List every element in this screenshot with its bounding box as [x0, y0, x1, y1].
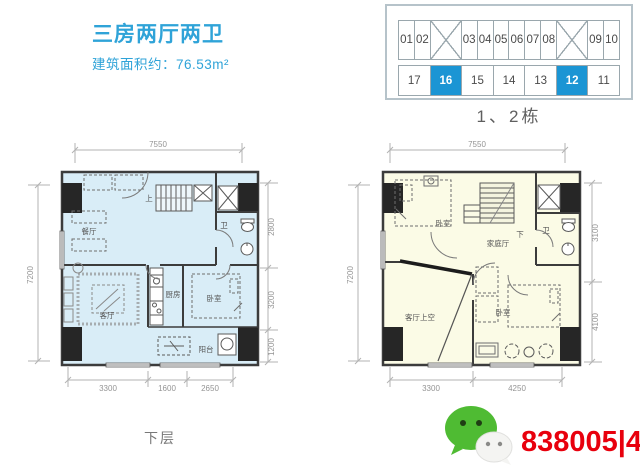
- unit-cell-05: 05: [493, 20, 510, 60]
- stair-direction-label: 上: [145, 194, 153, 203]
- wechat-icon: [441, 403, 519, 467]
- area-subtitle: 建筑面积约：76.53m²: [92, 53, 229, 73]
- unit-cell-03: 03: [461, 20, 478, 60]
- unit-cell-09: 09: [587, 20, 604, 60]
- building-caption: 1、2栋: [385, 102, 633, 127]
- unit-cell-14: 14: [493, 65, 526, 96]
- header: 三房两厅两卫 建筑面积约：76.53m²: [92, 18, 229, 73]
- unit-cell-08: 08: [540, 20, 557, 60]
- room-label-dining: 餐厅: [82, 227, 97, 236]
- unit-cell-01: 01: [398, 20, 415, 60]
- dim-bottom-1: 3300: [422, 384, 440, 393]
- staircase: [156, 185, 192, 211]
- floor-plan-lower: 7550 7200 2800 3200 1200 3300 1600 2650 …: [20, 135, 300, 405]
- dim-right-3: 1200: [267, 338, 276, 356]
- floor-caption: 下层: [110, 428, 210, 448]
- unit-cell-17: 17: [398, 65, 431, 96]
- dim-side: 7200: [26, 266, 35, 284]
- room-label-balcony: 阳台: [199, 344, 214, 354]
- floor-plan-upper: 7550 7200 3100 4100 3300 4250 下: [340, 135, 640, 405]
- dim-right-2: 4100: [591, 313, 600, 331]
- unit-cell-10: 10: [603, 20, 620, 60]
- room-label-bedroom-bottom: 卧室: [496, 307, 511, 317]
- dim-bottom-1: 3300: [99, 384, 117, 393]
- dim-side: 7200: [346, 266, 355, 284]
- unit-cell-11: 11: [587, 65, 620, 96]
- unit-cell-13: 13: [524, 65, 557, 96]
- unit-cell-07: 07: [524, 20, 541, 60]
- diagram-top-row: 01020304050607080910: [398, 20, 620, 60]
- room-label-bedroom-top: 卧室: [436, 218, 451, 228]
- dim-top: 7550: [149, 140, 167, 149]
- diagram-bottom-row: 17161514131211: [398, 65, 620, 96]
- stairwell-cross-cell: [430, 20, 462, 60]
- building-unit-diagram: 01020304050607080910 17161514131211: [385, 4, 633, 100]
- elevator-shaft: [538, 185, 560, 209]
- dim-top: 7550: [468, 140, 486, 149]
- unit-cell-06: 06: [508, 20, 525, 60]
- watermark-number: 838005|45: [521, 426, 640, 459]
- stair-direction-label: 下: [516, 230, 524, 239]
- unit-cell-16: 16: [430, 65, 463, 96]
- stairwell-cross-cell: [556, 20, 588, 60]
- dim-right-2: 3200: [267, 291, 276, 309]
- room-label-bath: 卫: [220, 221, 228, 230]
- page-title: 三房两厅两卫: [92, 18, 229, 48]
- dim-bottom-3: 2650: [201, 384, 219, 393]
- floorplan-page: 三房两厅两卫 建筑面积约：76.53m² 0102030405060708091…: [0, 0, 640, 470]
- unit-cell-02: 02: [414, 20, 431, 60]
- room-label-bedroom: 卧室: [207, 293, 222, 303]
- unit-cell-12: 12: [556, 65, 589, 96]
- dim-bottom-2: 4250: [508, 384, 526, 393]
- room-label-void: 客厅上空: [405, 312, 435, 322]
- room-label-kitchen: 厨房: [166, 289, 181, 299]
- unit-cell-04: 04: [477, 20, 494, 60]
- unit-cell-15: 15: [461, 65, 494, 96]
- dim-bottom-2: 1600: [158, 384, 176, 393]
- room-label-family: 家庭厅: [487, 238, 510, 248]
- dim-right-1: 3100: [591, 224, 600, 242]
- watermark: 838005|45: [441, 403, 640, 467]
- dim-right-1: 2800: [267, 218, 276, 236]
- room-label-living: 客厅: [100, 310, 115, 320]
